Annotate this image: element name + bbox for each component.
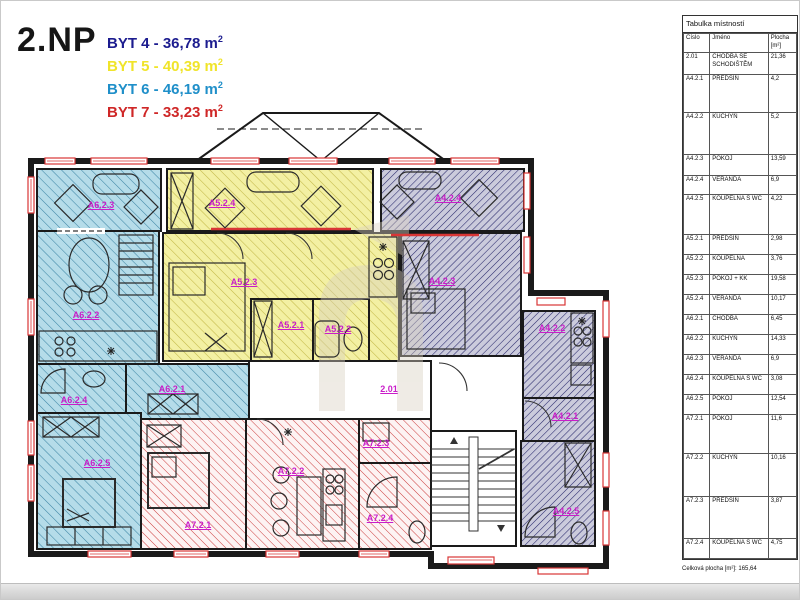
cell-name: PŘEDSÍŇ <box>710 235 769 255</box>
room-a5-2-4 <box>167 169 373 231</box>
room-label-2-01: 2.01 <box>380 384 398 394</box>
cell-area: 21,36 <box>768 53 796 75</box>
apartment-byt5 <box>163 169 399 361</box>
cell-id: A4.2.1 <box>684 75 710 113</box>
cell-area: 4,2 <box>768 75 796 113</box>
cell-name: VERANDA <box>710 355 769 375</box>
table-row: A6.2.4KOUPELNA S WC3,08 <box>684 375 797 395</box>
table-row: A5.2.2KOUPELNA3,76 <box>684 255 797 275</box>
room-a6-2-1 <box>126 364 249 419</box>
room-label-a7-2-1: A7.2.1 <box>185 520 212 530</box>
room-label-a4-2-2: A4.2.2 <box>539 323 566 333</box>
table-row: A4.2.5KOUPELNA S WC4,22 <box>684 195 797 235</box>
cell-id: A6.2.5 <box>684 395 710 415</box>
cell-id: A5.2.3 <box>684 275 710 295</box>
room-label-a4-2-5: A4.2.5 <box>553 506 580 516</box>
cell-area: 4,75 <box>768 539 796 559</box>
room-label-a7-2-4: A7.2.4 <box>367 513 394 523</box>
room-a7-2-4 <box>359 463 431 549</box>
cell-id: A5.2.1 <box>684 235 710 255</box>
cell-area: 10,17 <box>768 295 796 315</box>
room-a4-2-5 <box>521 441 595 546</box>
table-row: A6.2.2KUCHYŇ14,33 <box>684 335 797 355</box>
room-table-title: Tabulka místností <box>683 16 797 33</box>
cell-name: KOUPELNA <box>710 255 769 275</box>
room-label-a6-2-1: A6.2.1 <box>159 384 186 394</box>
cell-id: A7.2.1 <box>684 415 710 454</box>
cell-id: A7.2.4 <box>684 539 710 559</box>
room-label-a4-2-4: A4.2.4 <box>435 193 462 203</box>
page-edge <box>1 583 799 599</box>
column-header-jmeno: Jméno <box>710 34 769 53</box>
cell-area: 11,6 <box>768 415 796 454</box>
table-row: A4.2.2KUCHYŇ5,2 <box>684 113 797 155</box>
cell-name: KUCHYŇ <box>710 335 769 355</box>
room-a6-2-5 <box>37 413 141 549</box>
room-label-a5-2-3: A5.2.3 <box>231 277 258 287</box>
room-label-a4-2-1: A4.2.1 <box>552 411 579 421</box>
cell-id: A4.2.3 <box>684 155 710 176</box>
cell-area: 12,54 <box>768 395 796 415</box>
table-row: A6.2.5POKOJ12,54 <box>684 395 797 415</box>
cell-area: 19,58 <box>768 275 796 295</box>
room-table: Tabulka místností Číslo Jméno Plocha [m²… <box>682 15 798 560</box>
cell-area: 5,2 <box>768 113 796 155</box>
room-label-a5-2-1: A5.2.1 <box>278 320 305 330</box>
cell-area: 6,45 <box>768 315 796 335</box>
table-total-area: Celková plocha [m²]: 165,64 <box>682 566 757 572</box>
column-header-plocha: Plocha [m²] <box>768 34 796 53</box>
table-row: A5.2.4VERANDA10,17 <box>684 295 797 315</box>
cell-id: A6.2.1 <box>684 315 710 335</box>
cell-area: 10,16 <box>768 454 796 497</box>
room-label-a6-2-2: A6.2.2 <box>73 310 100 320</box>
cell-id: A6.2.3 <box>684 355 710 375</box>
cell-name: POKOJ <box>710 415 769 454</box>
cell-name: POKOJ <box>710 395 769 415</box>
room-label-a6-2-4: A6.2.4 <box>61 395 88 405</box>
room-label-a5-2-2: A5.2.2 <box>325 324 352 334</box>
room-a7-2-2 <box>246 419 359 549</box>
table-row: A7.2.3PŘEDSÍŇ3,87 <box>684 497 797 539</box>
cell-id: A6.2.2 <box>684 335 710 355</box>
cell-name: KOUPELNA S WC <box>710 539 769 559</box>
table-row: 2.01CHODBA SE SCHODIŠTĚM21,36 <box>684 53 797 75</box>
roof-gable <box>196 113 446 161</box>
cell-id: A7.2.2 <box>684 454 710 497</box>
room-label-a4-2-3: A4.2.3 <box>429 276 456 286</box>
cell-name: CHODBA SE SCHODIŠTĚM <box>710 53 769 75</box>
total-area-value: 165,64 <box>738 566 756 572</box>
total-area-label: Celková plocha [m²]: <box>682 566 737 572</box>
cell-id: A4.2.2 <box>684 113 710 155</box>
cell-area: 3,08 <box>768 375 796 395</box>
room-label-a5-2-4: A5.2.4 <box>209 198 236 208</box>
cell-name: PŘEDSÍŇ <box>710 75 769 113</box>
cell-area: 3,87 <box>768 497 796 539</box>
table-row: A5.2.3POKOJ + KK19,58 <box>684 275 797 295</box>
cell-name: CHODBA <box>710 315 769 335</box>
cell-id: A6.2.4 <box>684 375 710 395</box>
cell-id: A4.2.5 <box>684 195 710 235</box>
cell-area: 13,59 <box>768 155 796 176</box>
room-a6-2-4 <box>37 364 126 413</box>
floor-plan: A6.2.3 A5.2.4 A4.2.4 A6.2.2 A5.2.3 A5.2.… <box>1 1 681 601</box>
cell-area: 14,33 <box>768 335 796 355</box>
table-row: A4.2.3POKOJ13,59 <box>684 155 797 176</box>
cell-area: 3,76 <box>768 255 796 275</box>
cell-area: 2,98 <box>768 235 796 255</box>
table-row: A7.2.4KOUPELNA S WC4,75 <box>684 539 797 559</box>
table-row: A4.2.4VERANDA6,9 <box>684 176 797 195</box>
table-row: A5.2.1PŘEDSÍŇ2,98 <box>684 235 797 255</box>
room-label-a7-2-2: A7.2.2 <box>278 466 305 476</box>
cell-name: PŘEDSÍŇ <box>710 497 769 539</box>
cell-name: KOUPELNA S WC <box>710 375 769 395</box>
cell-name: POKOJ + KK <box>710 275 769 295</box>
room-a5-2-1 <box>251 299 313 361</box>
cell-id: A5.2.4 <box>684 295 710 315</box>
room-label-a6-2-3: A6.2.3 <box>88 200 115 210</box>
table-row: A4.2.1PŘEDSÍŇ4,2 <box>684 75 797 113</box>
cell-id: 2.01 <box>684 53 710 75</box>
table-row: A7.2.1POKOJ11,6 <box>684 415 797 454</box>
cell-id: A5.2.2 <box>684 255 710 275</box>
table-row: A6.2.3VERANDA6,9 <box>684 355 797 375</box>
cell-name: VERANDA <box>710 176 769 195</box>
cell-area: 4,22 <box>768 195 796 235</box>
cell-area: 6,9 <box>768 176 796 195</box>
table-row: A6.2.1CHODBA6,45 <box>684 315 797 335</box>
floor-plan-page: { "title": "2.NP", "legend": { "items": … <box>0 0 800 600</box>
cell-id: A7.2.3 <box>684 497 710 539</box>
cell-id: A4.2.4 <box>684 176 710 195</box>
room-label-a7-2-3: A7.2.3 <box>363 438 390 448</box>
wall-opening <box>57 228 105 234</box>
table-row: A7.2.2KUCHYŇ10,16 <box>684 454 797 497</box>
table-header-row: Číslo Jméno Plocha [m²] <box>684 34 797 53</box>
room-label-a6-2-5: A6.2.5 <box>84 458 111 468</box>
cell-area: 6,9 <box>768 355 796 375</box>
cell-name: VERANDA <box>710 295 769 315</box>
cell-name: KOUPELNA S WC <box>710 195 769 235</box>
cell-name: POKOJ <box>710 155 769 176</box>
column-header-cislo: Číslo <box>684 34 710 53</box>
cell-name: KUCHYŇ <box>710 113 769 155</box>
cell-name: KUCHYŇ <box>710 454 769 497</box>
